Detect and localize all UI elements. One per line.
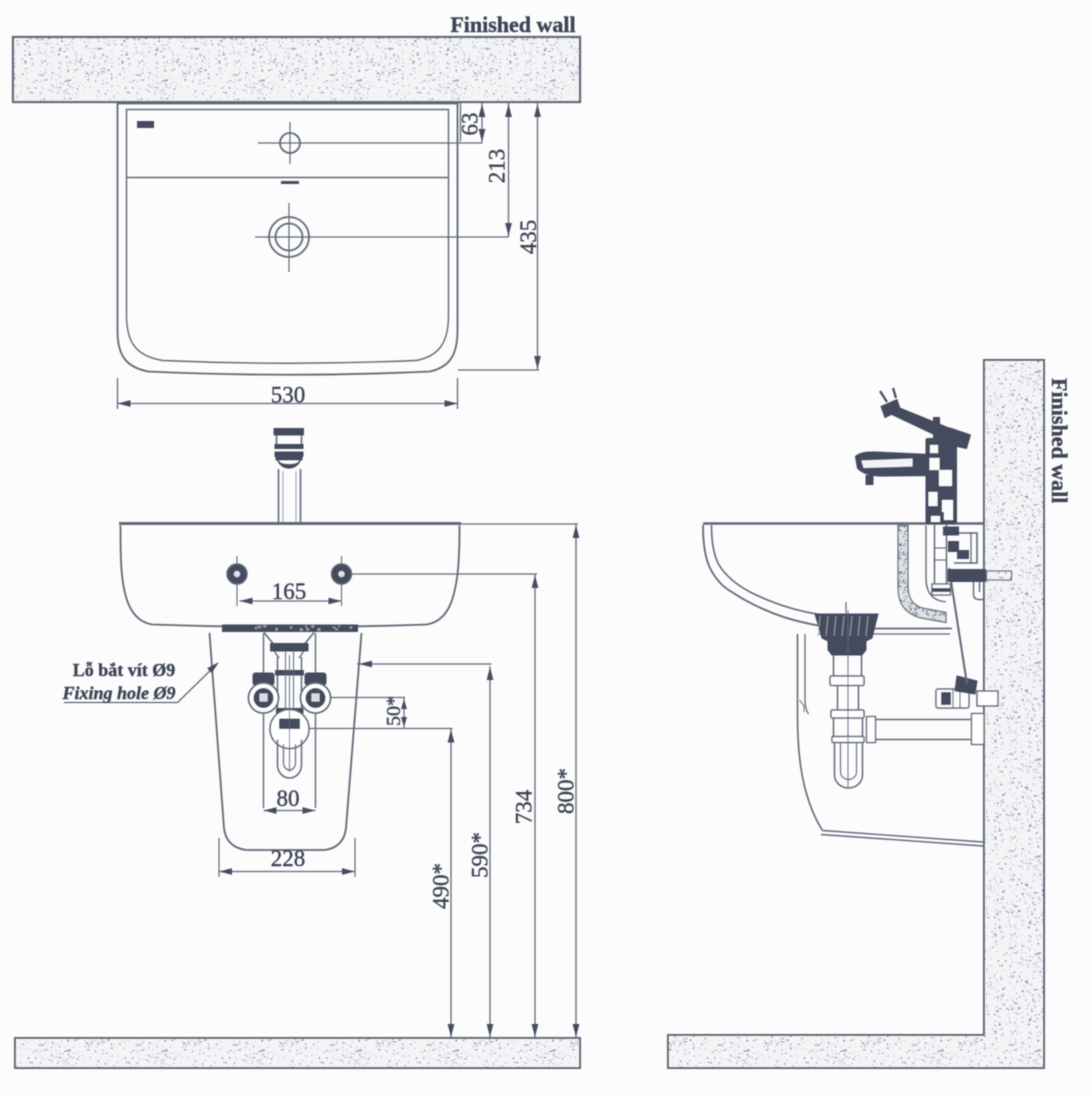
svg-text:Fixing hole Ø9: Fixing hole Ø9 <box>61 683 175 703</box>
svg-text:800*: 800* <box>554 768 579 814</box>
svg-text:590*: 590* <box>468 832 493 878</box>
svg-text:228: 228 <box>271 846 306 871</box>
svg-text:165: 165 <box>272 579 307 604</box>
svg-text:Finished wall: Finished wall <box>450 12 575 37</box>
svg-text:50*: 50* <box>383 696 405 726</box>
svg-text:435: 435 <box>516 220 541 255</box>
svg-text:Lỗ bắt vít Ø9: Lỗ bắt vít Ø9 <box>73 660 176 680</box>
svg-text:213: 213 <box>485 149 510 184</box>
svg-text:734: 734 <box>512 789 537 824</box>
svg-text:Finished wall: Finished wall <box>1047 378 1072 503</box>
svg-text:530: 530 <box>271 383 306 408</box>
svg-text:80: 80 <box>277 786 300 811</box>
svg-text:490*: 490* <box>429 863 454 909</box>
svg-text:63: 63 <box>458 113 483 136</box>
